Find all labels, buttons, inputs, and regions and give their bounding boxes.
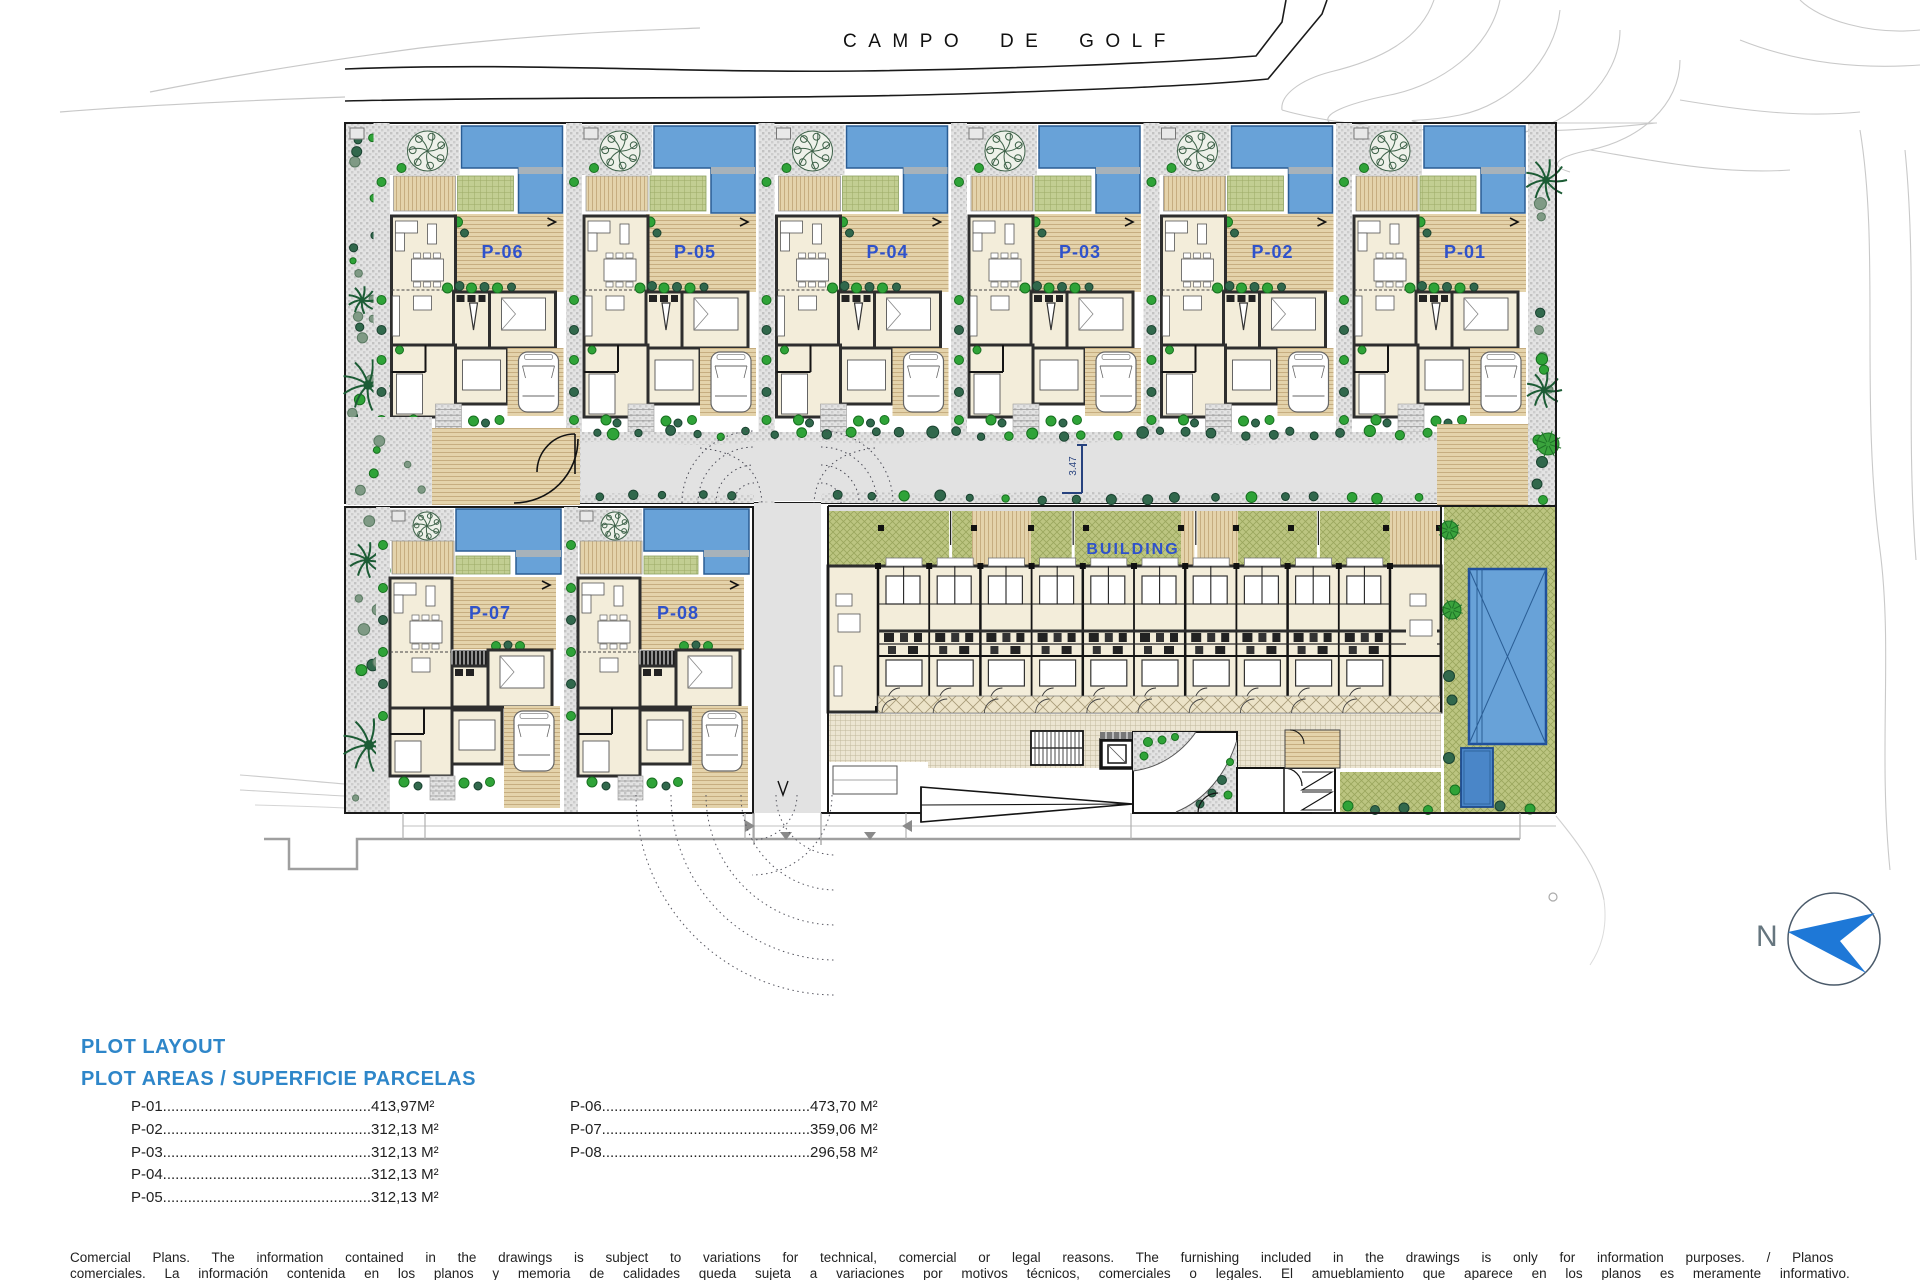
svg-text:comerciales. La información co: comerciales. La información contenida en… (70, 1266, 1850, 1280)
svg-text:P-07: P-07 (469, 603, 511, 623)
svg-text:3.47: 3.47 (1068, 456, 1079, 476)
svg-text:P-08..........................: P-08....................................… (570, 1144, 878, 1161)
svg-text:Comercial Plans. The informati: Comercial Plans. The information contain… (70, 1250, 1834, 1265)
svg-text:P-03..........................: P-03....................................… (131, 1144, 439, 1161)
svg-text:P-08: P-08 (657, 603, 699, 623)
svg-text:P-01..........................: P-01....................................… (131, 1098, 434, 1115)
svg-text:PLOT AREAS / SUPERFICIE PARCEL: PLOT AREAS / SUPERFICIE PARCELAS (81, 1068, 476, 1090)
svg-text:P-05: P-05 (674, 242, 716, 262)
svg-text:P-01: P-01 (1444, 242, 1486, 262)
svg-text:BUILDING: BUILDING (1086, 541, 1179, 558)
svg-text:P-06..........................: P-06....................................… (570, 1098, 878, 1115)
svg-text:P-02..........................: P-02....................................… (131, 1121, 439, 1138)
svg-text:P-06: P-06 (481, 242, 523, 262)
svg-text:P-02: P-02 (1251, 242, 1293, 262)
svg-text:P-07..........................: P-07....................................… (570, 1121, 878, 1138)
svg-text:P-05..........................: P-05....................................… (131, 1189, 439, 1206)
svg-text:PLOT LAYOUT: PLOT LAYOUT (81, 1036, 226, 1058)
svg-text:P-04..........................: P-04....................................… (131, 1166, 439, 1183)
svg-text:CAMPO DE GOLF: CAMPO DE GOLF (843, 31, 1177, 52)
svg-text:P-03: P-03 (1059, 242, 1101, 262)
svg-text:P-04: P-04 (866, 242, 908, 262)
svg-text:N: N (1756, 920, 1778, 953)
